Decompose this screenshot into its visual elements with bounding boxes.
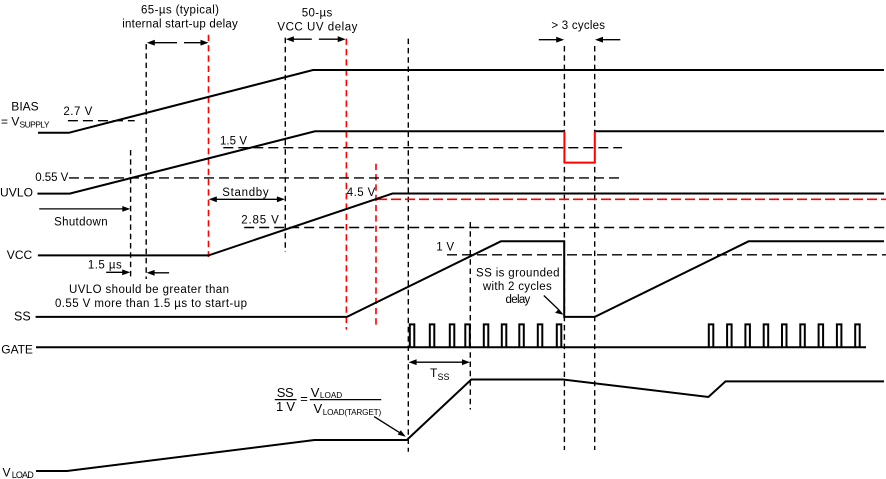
svg-text:delay: delay [506, 294, 531, 306]
svg-text:Standby: Standby [222, 187, 269, 199]
svg-text:internal start-up delay: internal start-up delay [122, 18, 238, 30]
svg-text:1 V: 1 V [276, 399, 295, 414]
svg-text:LOAD: LOAD [12, 470, 35, 479]
svg-text:BIAS: BIAS [11, 100, 38, 114]
svg-text:UVLO: UVLO [0, 186, 33, 200]
svg-text:4.5 V: 4.5 V [347, 187, 376, 199]
svg-text:1.5 µs: 1.5 µs [88, 259, 122, 271]
svg-text:SS is grounded: SS is grounded [476, 267, 560, 279]
svg-text:SUPPLY: SUPPLY [20, 119, 50, 129]
svg-text:65-µs (typical): 65-µs (typical) [141, 5, 219, 17]
svg-text:0.55 V: 0.55 V [35, 172, 68, 184]
svg-text:=: = [300, 391, 308, 406]
svg-text:V: V [311, 385, 320, 400]
svg-text:SS: SS [14, 310, 31, 324]
svg-text:V: V [314, 401, 323, 416]
svg-text:1.5 V: 1.5 V [220, 136, 247, 148]
svg-text:2.85 V: 2.85 V [241, 215, 279, 227]
svg-text:> 3 cycles: > 3 cycles [551, 20, 605, 32]
svg-text:0.55 V more than 1.5 µs to sta: 0.55 V more than 1.5 µs to start-up [55, 298, 247, 310]
svg-text:GATE: GATE [1, 343, 33, 357]
svg-text:LOAD: LOAD [320, 391, 342, 400]
svg-text:VCC: VCC [7, 248, 33, 262]
svg-text:= V: = V [1, 114, 19, 128]
svg-text:LOAD(TARGET): LOAD(TARGET) [323, 408, 382, 417]
svg-text:with 2 cycles: with 2 cycles [482, 281, 552, 293]
svg-text:Shutdown: Shutdown [54, 217, 108, 229]
svg-text:VCC UV delay: VCC UV delay [277, 22, 357, 34]
svg-text:50-µs: 50-µs [302, 7, 333, 19]
svg-text:SS: SS [438, 372, 450, 382]
svg-text:1 V: 1 V [436, 241, 454, 253]
svg-text:V: V [3, 465, 11, 479]
svg-text:UVLO should be greater than: UVLO should be greater than [69, 284, 229, 296]
svg-text:SS: SS [277, 385, 294, 400]
svg-text:2.7 V: 2.7 V [63, 106, 92, 118]
